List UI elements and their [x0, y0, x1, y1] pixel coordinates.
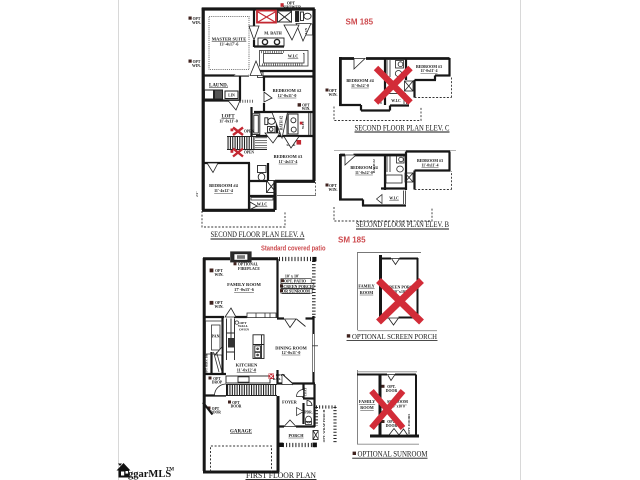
svg-text:DOOR: DOOR — [231, 405, 242, 409]
svg-text:BEDROOM #3: BEDROOM #3 — [416, 64, 442, 69]
svg-text:DOOR: DOOR — [386, 424, 398, 428]
svg-text:12'-0x11'-0: 12'-0x11'-0 — [278, 93, 297, 98]
svg-text:WIN.: WIN. — [192, 64, 201, 68]
svg-text:DROP: DROP — [212, 381, 223, 385]
svg-text:FAMILY: FAMILY — [358, 284, 374, 289]
svg-text:SECOND FLOOR PLAN ELEV. B: SECOND FLOOR PLAN ELEV. B — [356, 220, 449, 229]
svg-text:ggarMLS: ggarMLS — [128, 469, 171, 480]
svg-text:LIN: LIN — [304, 27, 308, 34]
svg-text:FAMILY: FAMILY — [359, 399, 375, 404]
svg-text:BATH #2: BATH #2 — [280, 116, 284, 131]
svg-text:BEDROOM #3: BEDROOM #3 — [417, 158, 443, 163]
svg-text:SECOND FLOOR PLAN ELEV. C: SECOND FLOOR PLAN ELEV. C — [355, 123, 450, 132]
svg-text:11'-0x12'-0: 11'-0x12'-0 — [355, 171, 373, 175]
svg-text:OVEN: OVEN — [239, 328, 250, 332]
svg-text:OPT. DOORS: OPT. DOORS — [407, 414, 411, 435]
svg-text:LAUND.: LAUND. — [209, 84, 229, 89]
svg-text:11'-4x13'-4: 11'-4x13'-4 — [279, 159, 298, 164]
svg-text:Standard covered patio: Standard covered patio — [261, 246, 326, 253]
svg-text:11'-0x11'-4: 11'-0x11'-4 — [421, 163, 438, 167]
svg-text:W.I.C: W.I.C — [288, 54, 299, 59]
svg-text:WIN.: WIN. — [329, 93, 338, 97]
svg-text:OPT SERV. DR: OPT SERV. DR — [205, 353, 209, 374]
svg-text:OPTIONAL SCREEN PORCH: OPTIONAL SCREEN PORCH — [352, 332, 437, 341]
svg-text:LIN: LIN — [228, 94, 235, 98]
svg-text:SM 185: SM 185 — [346, 18, 374, 27]
svg-text:RAIL: RAIL — [273, 377, 282, 381]
svg-text:17'-0x15'-6: 17'-0x15'-6 — [234, 287, 254, 292]
svg-text:ROOM: ROOM — [360, 290, 374, 295]
svg-text:OPEN: OPEN — [244, 129, 254, 133]
svg-text:SM 185: SM 185 — [338, 236, 366, 245]
svg-text:11'-4x12'-4: 11'-4x12'-4 — [214, 188, 233, 193]
svg-text:12'-0x11'-0: 12'-0x11'-0 — [282, 350, 301, 355]
svg-text:OPEN: OPEN — [244, 150, 254, 154]
svg-text:WIN.: WIN. — [215, 273, 224, 277]
svg-text:OPT. WRAP PORCH: OPT. WRAP PORCH — [322, 409, 326, 442]
svg-text:W.I.C: W.I.C — [391, 99, 401, 103]
svg-text:ROOM: ROOM — [360, 405, 374, 410]
svg-text:SECOND FLOOR PLAN ELEV. A: SECOND FLOOR PLAN ELEV. A — [211, 230, 305, 239]
svg-text:M. BATH: M. BATH — [264, 30, 282, 35]
svg-text:W.I.C: W.I.C — [301, 120, 305, 129]
svg-text:FIREPLACE: FIREPLACE — [238, 267, 260, 271]
svg-text:DOOR: DOOR — [386, 389, 398, 393]
svg-text:11'-0x12'-0: 11'-0x12'-0 — [351, 84, 369, 88]
svg-text:OR SUNROOM: OR SUNROOM — [282, 289, 310, 294]
svg-text:13'-4x17'-6: 13'-4x17'-6 — [220, 42, 239, 47]
svg-text:FOYER: FOYER — [282, 400, 298, 405]
svg-text:W.I.C: W.I.C — [389, 197, 399, 201]
svg-text:2'2": 2'2" — [195, 191, 199, 197]
svg-text:11'-0x12'-0: 11'-0x12'-0 — [237, 367, 257, 372]
svg-text:WIN.: WIN. — [215, 305, 224, 309]
svg-text:TM: TM — [166, 468, 174, 473]
svg-text:COAT: COAT — [304, 388, 308, 396]
svg-text:11'-0x11'-4: 11'-0x11'-4 — [420, 69, 437, 73]
svg-text:PORCH: PORCH — [288, 433, 304, 438]
svg-text:11'-0x11'-0: 11'-0x11'-0 — [219, 118, 237, 123]
svg-text:PDR.: PDR. — [304, 410, 312, 414]
svg-text:BATH #2: BATH #2 — [372, 159, 376, 173]
svg-text:WIN.: WIN. — [302, 107, 311, 111]
svg-text:FIRST FLOOR PLAN: FIRST FLOOR PLAN — [246, 471, 316, 480]
svg-text:GARAGE: GARAGE — [230, 429, 253, 434]
svg-text:SHOWER: SHOWER — [283, 5, 301, 10]
svg-text:WIN.: WIN. — [329, 188, 338, 192]
svg-text:PAN.: PAN. — [212, 334, 221, 339]
svg-text:OPTIONAL SUNROOM: OPTIONAL SUNROOM — [358, 450, 428, 459]
svg-text:WIN.: WIN. — [192, 21, 201, 25]
svg-text:W.I.C: W.I.C — [257, 202, 268, 207]
svg-text:BEDROOM #4: BEDROOM #4 — [346, 78, 374, 83]
